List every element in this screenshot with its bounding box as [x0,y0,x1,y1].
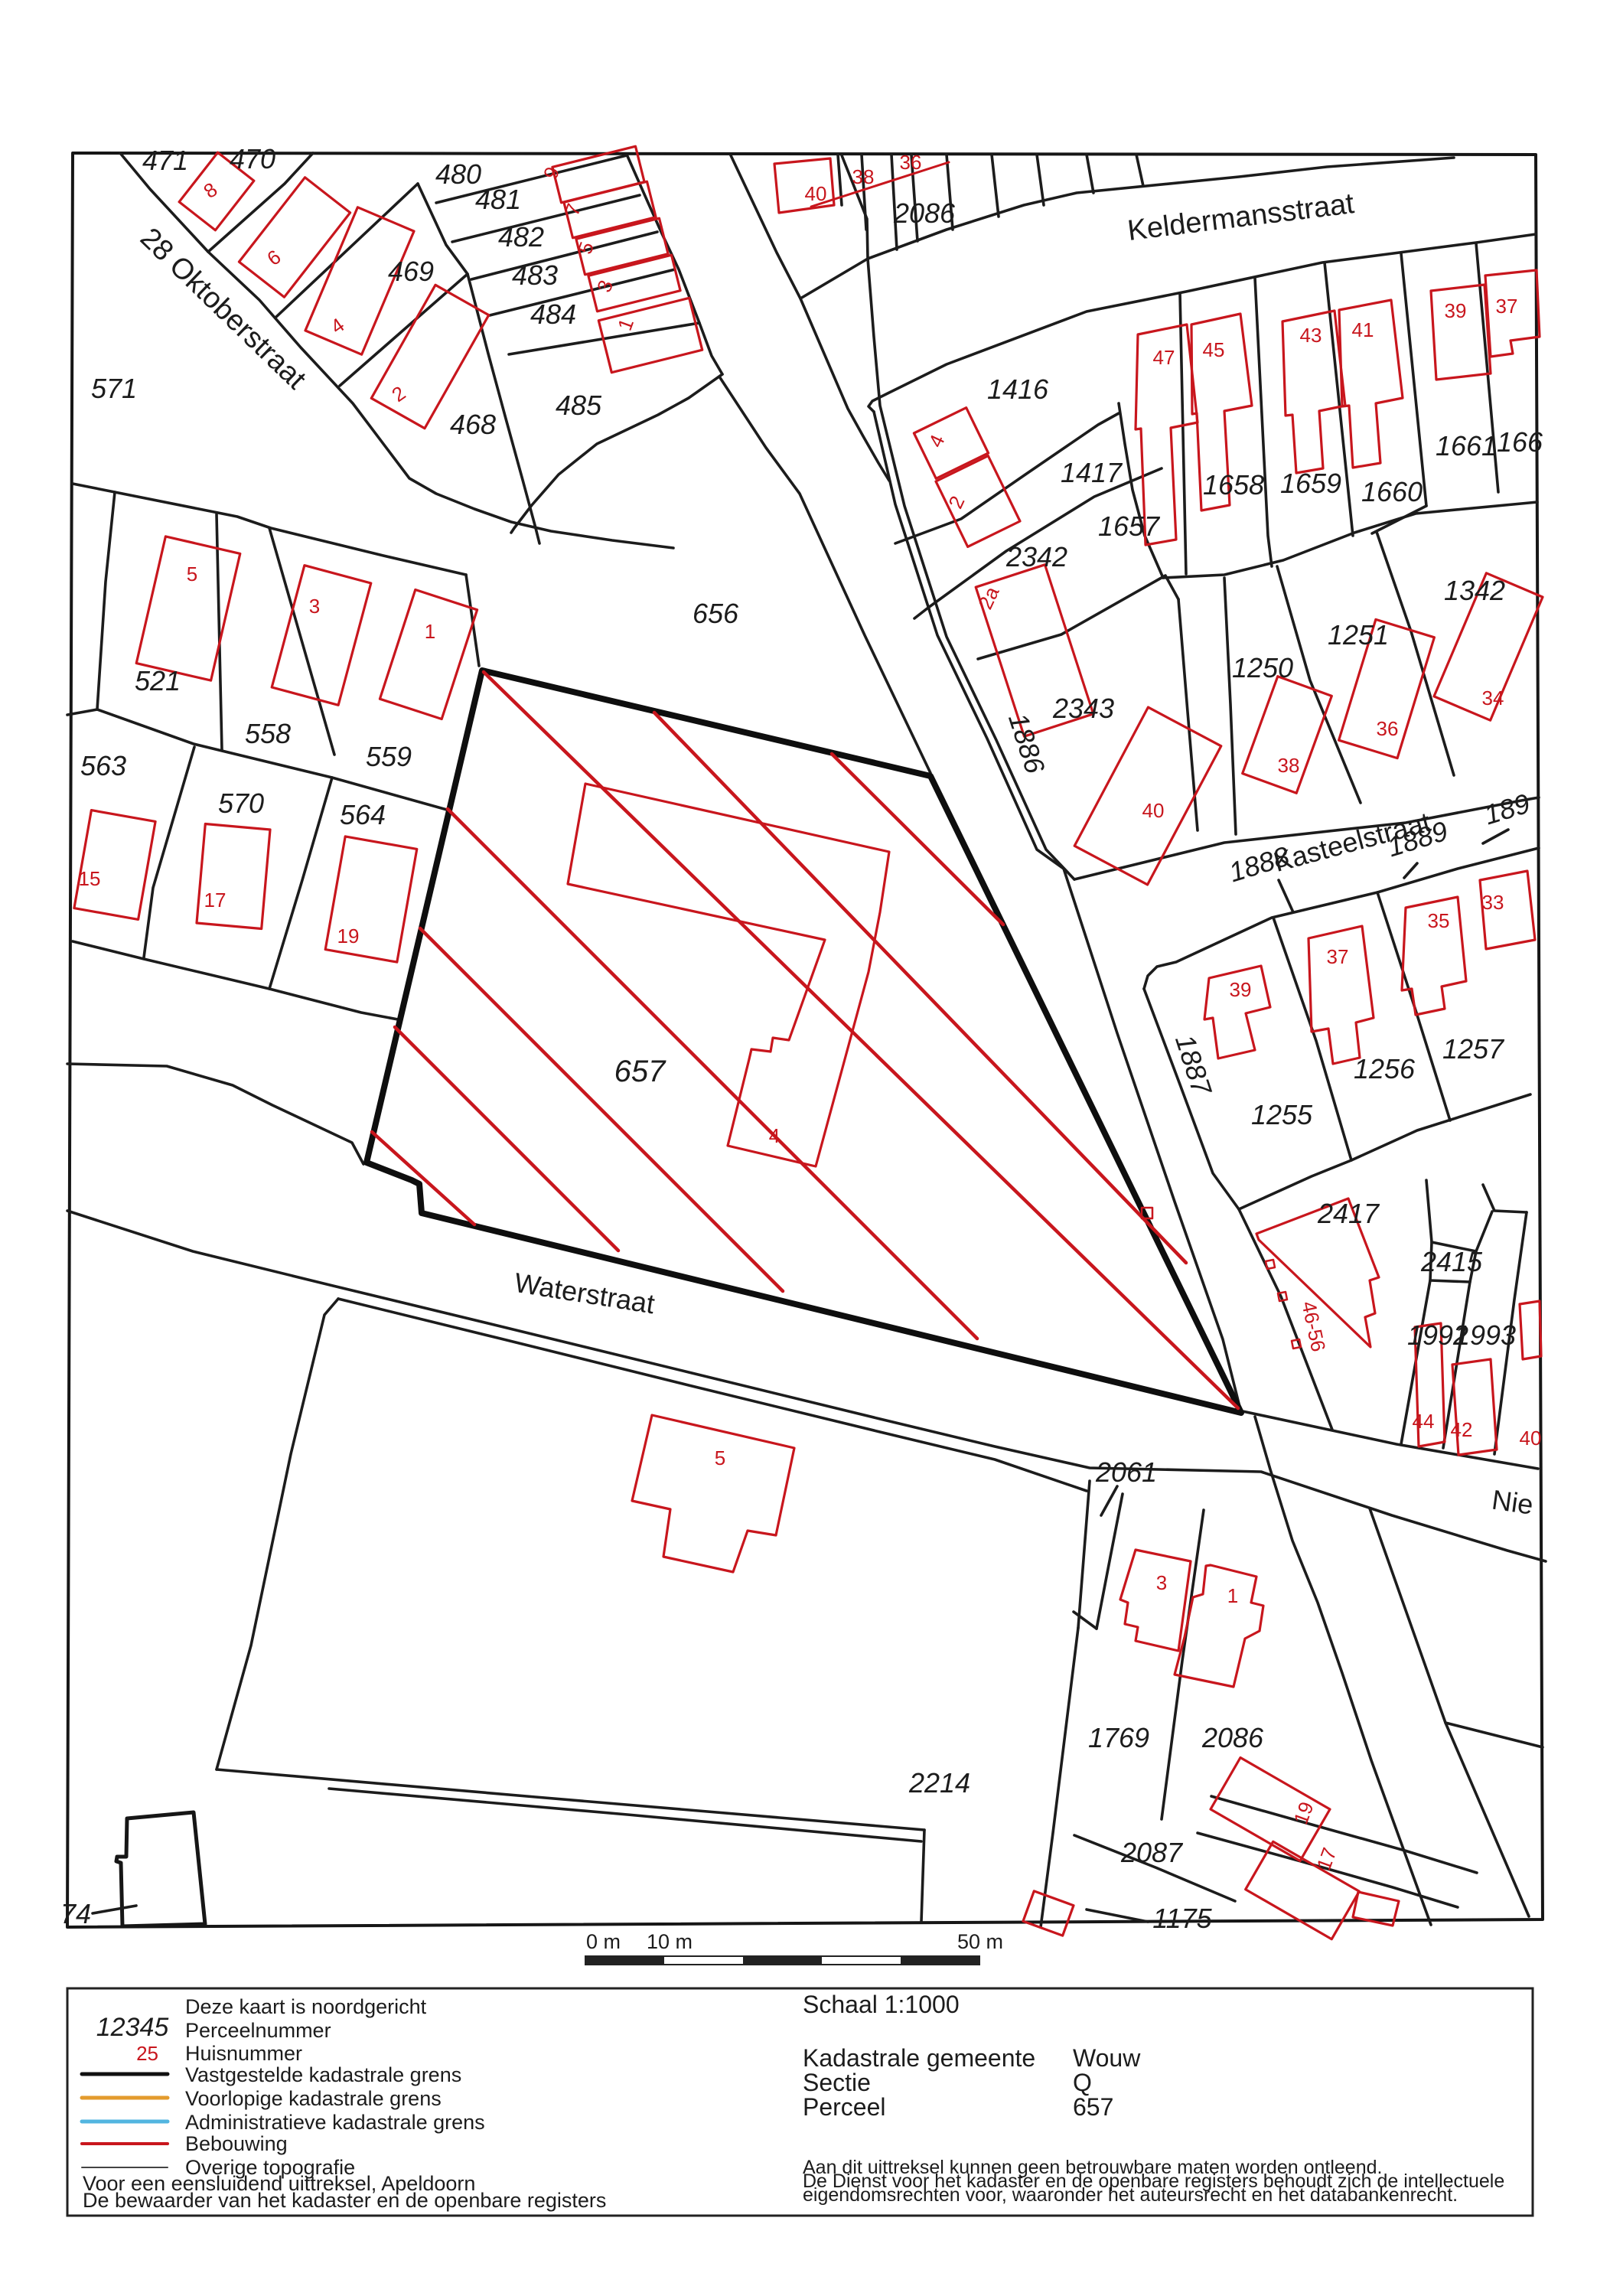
svg-text:1417: 1417 [1061,457,1123,488]
svg-text:558: 558 [245,718,291,749]
svg-text:3: 3 [309,595,320,618]
svg-text:Deze kaart is noordgericht: Deze kaart is noordgericht [185,1995,427,2018]
svg-text:45: 45 [1203,338,1225,361]
svg-text:Voorlopige kadastrale grens: Voorlopige kadastrale grens [185,2087,442,2110]
svg-text:42: 42 [1451,1418,1473,1441]
svg-text:1769: 1769 [1088,1722,1149,1753]
svg-text:1416: 1416 [987,373,1049,405]
svg-text:481: 481 [475,184,521,215]
svg-text:10 m: 10 m [647,1930,693,1953]
svg-text:17: 17 [204,889,227,912]
svg-text:Perceel: Perceel [803,2093,886,2121]
svg-text:1255: 1255 [1251,1099,1313,1130]
svg-text:4: 4 [769,1124,780,1147]
svg-text:15: 15 [79,867,101,890]
svg-text:166: 166 [1497,426,1543,458]
svg-text:Vastgestelde kadastrale grens: Vastgestelde kadastrale grens [185,2063,461,2086]
svg-text:656: 656 [693,598,739,629]
svg-text:3: 3 [1156,1571,1167,1594]
svg-text:1993: 1993 [1455,1319,1516,1351]
svg-text:1175: 1175 [1152,1903,1212,1934]
svg-text:36: 36 [900,151,922,174]
svg-text:Huisnummer: Huisnummer [185,2042,302,2065]
svg-text:40: 40 [1142,799,1165,822]
svg-text:40: 40 [805,182,827,205]
svg-text:1: 1 [1227,1584,1238,1607]
svg-text:564: 564 [340,799,386,830]
svg-text:1256: 1256 [1354,1053,1416,1084]
svg-text:563: 563 [80,750,126,781]
svg-text:1: 1 [425,620,435,643]
svg-text:1342: 1342 [1444,575,1505,606]
svg-text:35: 35 [1428,909,1450,932]
svg-text:50 m: 50 m [957,1930,1003,1953]
svg-text:1661: 1661 [1436,430,1497,461]
svg-text:34: 34 [1482,687,1504,709]
svg-text:38: 38 [1278,754,1300,777]
svg-text:484: 484 [530,298,576,330]
svg-text:470: 470 [230,143,275,174]
svg-text:2417: 2417 [1317,1198,1380,1229]
svg-text:37: 37 [1496,295,1518,318]
svg-text:1250: 1250 [1232,652,1293,683]
svg-text:2214: 2214 [908,1767,970,1799]
svg-text:74: 74 [60,1898,91,1929]
svg-text:0 m: 0 m [586,1930,621,1953]
svg-text:2342: 2342 [1005,541,1067,572]
svg-text:Bebouwing: Bebouwing [185,2132,288,2155]
svg-text:559: 559 [366,741,412,772]
svg-text:40: 40 [1520,1427,1542,1450]
svg-text:Kadastrale gemeente: Kadastrale gemeente [803,2044,1035,2072]
svg-text:Q: Q [1073,2069,1092,2096]
svg-text:Wouw: Wouw [1073,2044,1141,2072]
svg-text:37: 37 [1327,945,1349,968]
svg-text:38: 38 [852,165,875,188]
svg-text:485: 485 [556,390,602,421]
svg-text:Sectie: Sectie [803,2069,871,2096]
svg-text:1660: 1660 [1361,476,1423,507]
svg-text:1658: 1658 [1203,469,1264,501]
svg-text:47: 47 [1153,346,1175,369]
svg-text:41: 41 [1352,318,1374,341]
svg-text:482: 482 [498,221,544,253]
svg-text:2086: 2086 [893,197,956,229]
svg-text:483: 483 [512,259,558,291]
svg-text:471: 471 [142,145,188,176]
svg-text:12345: 12345 [96,2013,169,2042]
svg-text:44: 44 [1413,1410,1435,1433]
svg-text:Schaal 1:1000: Schaal 1:1000 [803,1991,960,2018]
svg-text:2343: 2343 [1052,693,1114,724]
svg-text:469: 469 [388,256,434,287]
svg-text:39: 39 [1230,978,1252,1001]
svg-text:25: 25 [136,2042,158,2065]
svg-text:1257: 1257 [1442,1033,1505,1065]
svg-text:1251: 1251 [1328,619,1389,651]
svg-text:468: 468 [450,409,496,440]
svg-text:Nie: Nie [1490,1484,1535,1521]
svg-text:eigendomsrechten voor, waarond: eigendomsrechten voor, waaronder het aut… [803,2184,1458,2206]
svg-text:33: 33 [1482,891,1504,914]
svg-text:De bewaarder van het kadaster: De bewaarder van het kadaster en de open… [83,2189,606,2212]
svg-text:657: 657 [1073,2093,1113,2121]
svg-text:43: 43 [1300,324,1322,347]
svg-text:19: 19 [337,925,360,947]
svg-text:5: 5 [187,563,197,585]
svg-text:1659: 1659 [1280,468,1341,499]
svg-text:2415: 2415 [1420,1246,1483,1277]
svg-text:Administratieve kadastrale gre: Administratieve kadastrale grens [185,2111,485,2134]
svg-text:Perceelnummer: Perceelnummer [185,2019,331,2042]
svg-text:521: 521 [135,665,181,696]
svg-text:571: 571 [91,373,137,404]
svg-text:657: 657 [614,1055,666,1088]
svg-text:36: 36 [1377,717,1399,740]
svg-text:39: 39 [1445,299,1467,322]
svg-text:2087: 2087 [1120,1837,1184,1868]
svg-text:5: 5 [715,1446,725,1469]
svg-text:2061: 2061 [1095,1456,1157,1488]
svg-text:1657: 1657 [1098,510,1161,542]
svg-text:570: 570 [218,788,264,819]
svg-text:2086: 2086 [1201,1722,1264,1753]
